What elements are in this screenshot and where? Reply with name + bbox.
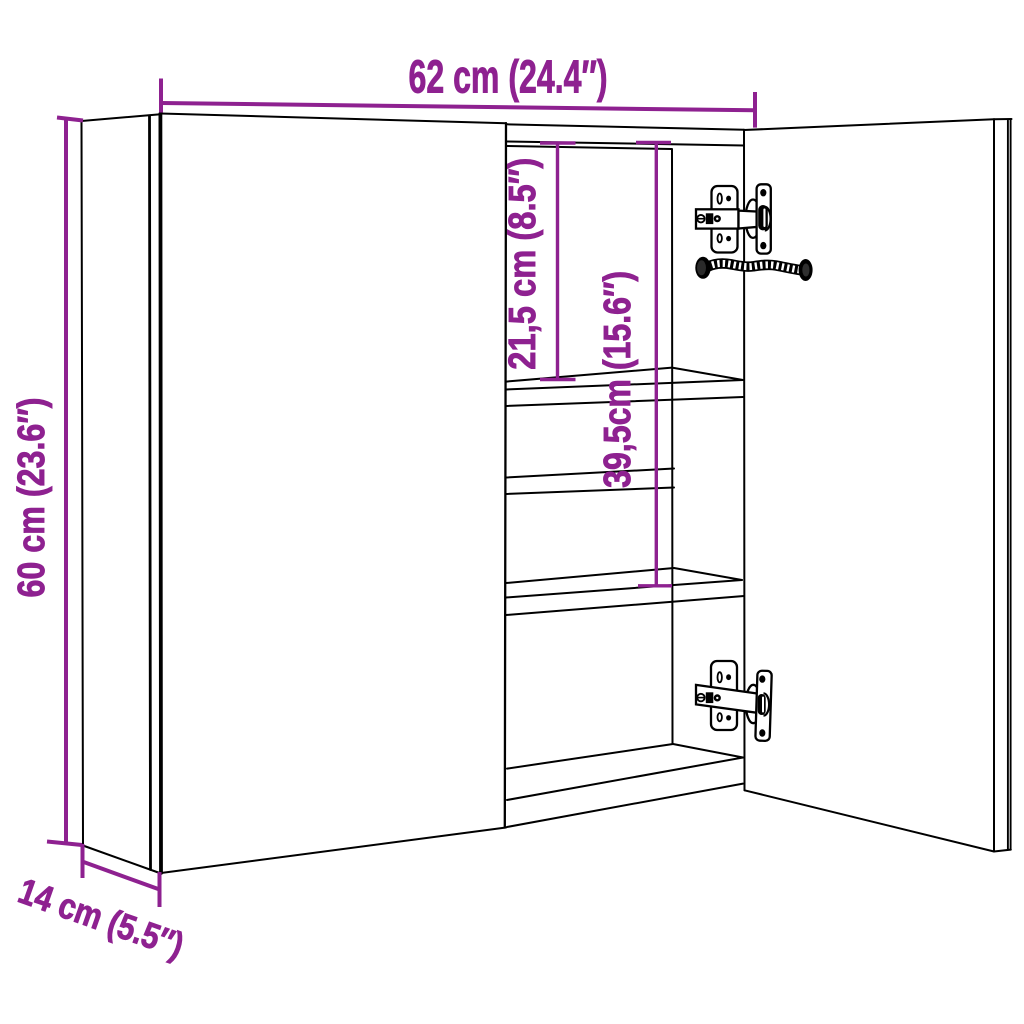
- svg-text:39,5cm (15.6″): 39,5cm (15.6″): [597, 271, 639, 488]
- svg-text:21,5 cm (8.5″): 21,5 cm (8.5″): [502, 158, 544, 370]
- svg-text:62 cm (24.4″): 62 cm (24.4″): [409, 51, 608, 103]
- svg-text:60 cm (23.6″): 60 cm (23.6″): [11, 398, 53, 598]
